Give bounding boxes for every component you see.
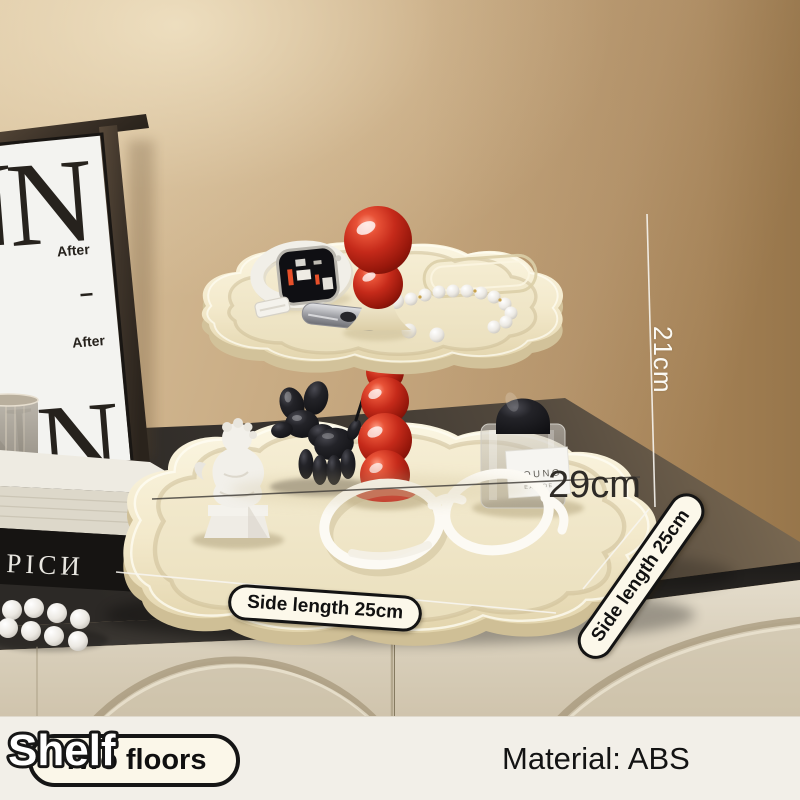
pearl [21,621,41,641]
book-spine-text: РІСИ [6,548,85,581]
diameter-label: 29cm [548,464,641,507]
pearl [44,626,64,646]
poster-caption-2: After [72,332,106,351]
pearl [2,600,22,620]
brand-text: Shelf [8,726,116,775]
finial-ball-top [344,206,412,274]
pearl [47,603,67,623]
pearl [70,609,90,629]
footer-bar: Two floors Shelf Material: ABS [0,716,800,800]
pearl [68,631,88,651]
poster-caption-1: After [56,241,90,260]
top-tray-shadow [230,474,530,506]
product-photo-stage: N N After After N N РІСИ [0,0,800,800]
pearl [24,598,44,618]
height-label: 21cm [648,326,678,400]
brand-wordmark: Shelf [0,717,160,783]
scene-svg: N N After After N N РІСИ [0,0,800,800]
loose-pearl [430,328,445,343]
material-label: Material: ABS [502,741,690,777]
